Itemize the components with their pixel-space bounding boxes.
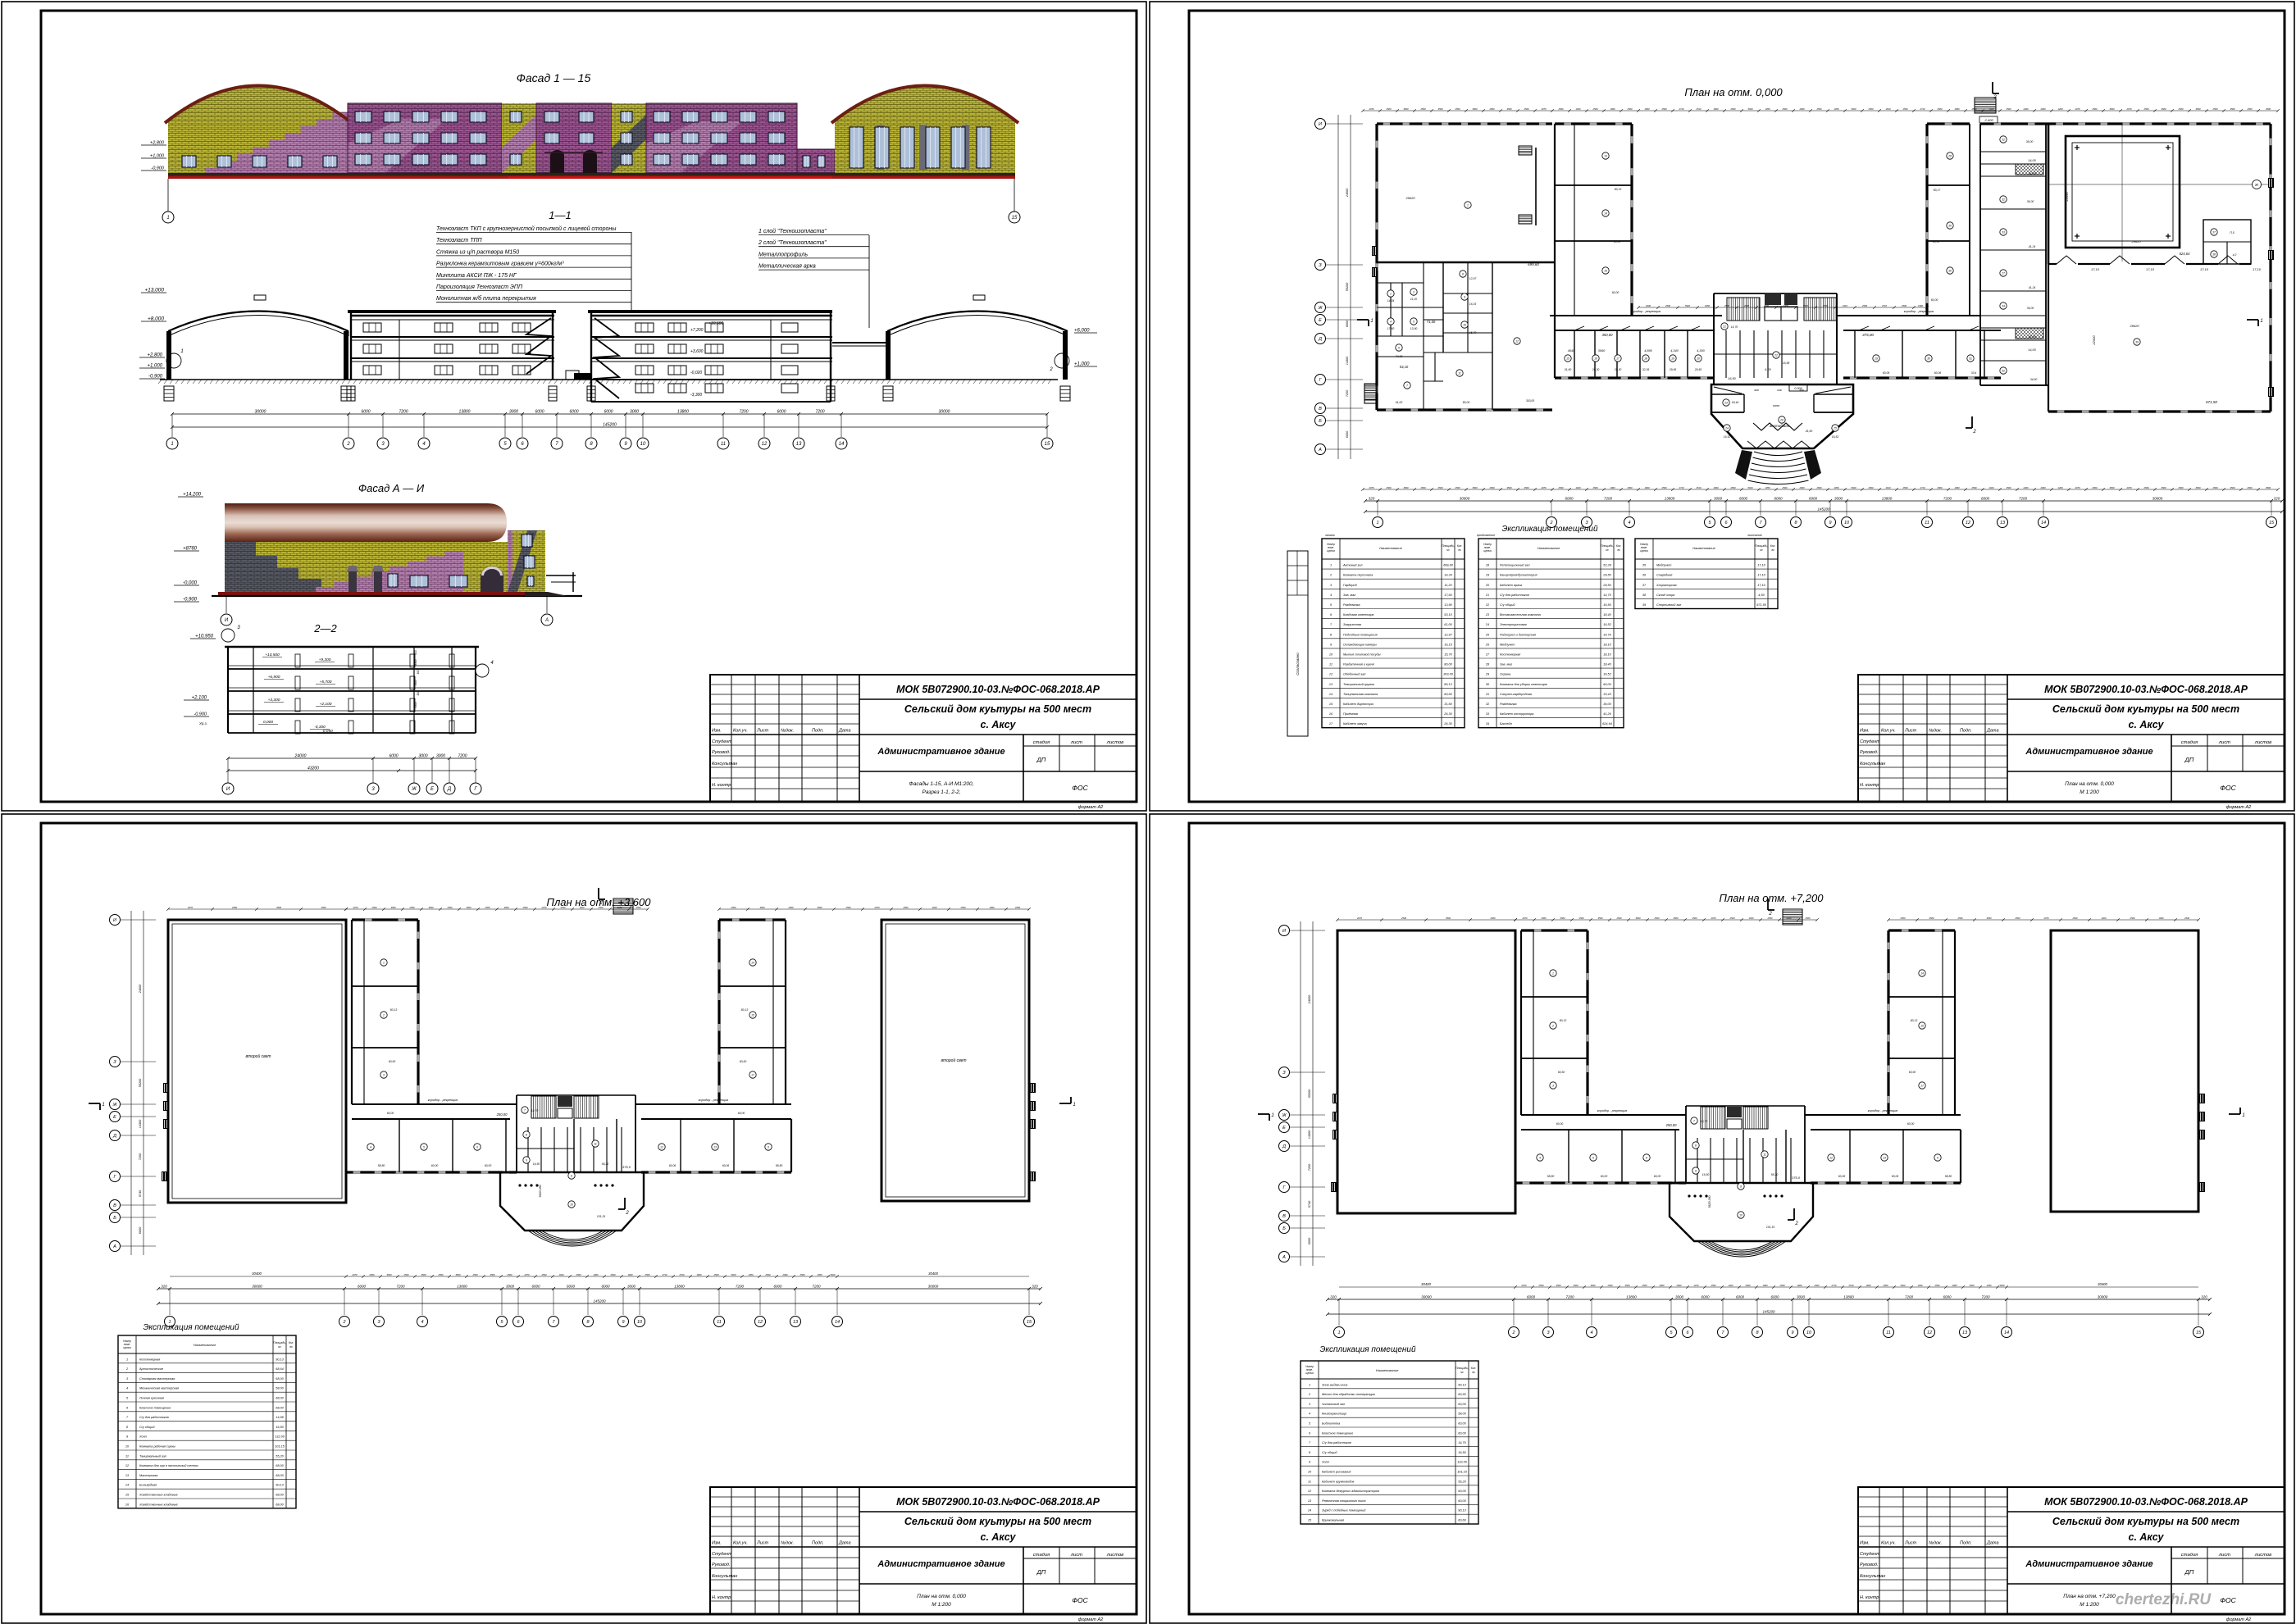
svg-text:320: 320: [2201, 1295, 2207, 1299]
svg-text:Кабинет врача: Кабинет врача: [1500, 584, 1522, 587]
svg-text:2500: 2500: [2247, 486, 2253, 489]
svg-text:320: 320: [161, 1285, 167, 1289]
svg-text:План на отм. 0,000: План на отм. 0,000: [2065, 781, 2114, 787]
svg-text:второй свет: второй свет: [245, 1053, 271, 1059]
svg-text:2000: 2000: [1743, 304, 1749, 307]
svg-text:1: 1: [1330, 564, 1332, 567]
svg-text:13,90: 13,90: [1444, 603, 1452, 607]
svg-text:4,340: 4,340: [1670, 349, 1679, 353]
svg-text:Площадь,: Площадь,: [1442, 544, 1455, 548]
svg-text:699,60: 699,60: [1443, 564, 1454, 567]
svg-text:С/у для работников: С/у для работников: [1500, 594, 1529, 597]
svg-text:9: 9: [126, 1435, 129, 1439]
svg-text:18,40: 18,40: [1603, 613, 1611, 616]
svg-text:101,15: 101,15: [597, 1215, 605, 1218]
svg-text:6000: 6000: [531, 1285, 540, 1289]
svg-text:14,70: 14,70: [531, 1109, 539, 1112]
svg-text:32,36: 32,36: [1642, 368, 1650, 371]
svg-text:3060: 3060: [1598, 349, 1606, 353]
svg-text:5920: 5920: [1901, 1284, 1906, 1287]
svg-text:16,52: 16,52: [1724, 435, 1731, 439]
svg-text:во: во: [289, 1345, 293, 1349]
svg-text:2500: 2500: [1558, 107, 1564, 111]
svg-text:60,06: 60,06: [722, 1164, 730, 1167]
svg-text:11: 11: [721, 442, 726, 447]
svg-text:1920: 1920: [559, 1273, 564, 1276]
svg-text:5: 5: [126, 1397, 129, 1400]
svg-text:второй свет: второй свет: [941, 1058, 966, 1063]
svg-text:формат А2: формат А2: [2226, 805, 2251, 810]
svg-text:А: А: [112, 1244, 116, 1249]
svg-text:+10,500: +10,500: [708, 321, 723, 326]
svg-text:6000: 6000: [604, 410, 613, 415]
svg-text:Снарядная: Снарядная: [1656, 574, 1672, 577]
svg-text:2500: 2500: [1861, 304, 1867, 307]
svg-text:Д: Д: [112, 1134, 116, 1139]
svg-text:2: 2: [1768, 912, 1772, 917]
svg-text:17: 17: [1616, 357, 1619, 361]
svg-text:2500: 2500: [2212, 107, 2218, 111]
svg-text:Лист: Лист: [756, 1541, 769, 1546]
svg-text:+6,900: +6,900: [268, 675, 280, 680]
svg-text:Административное здание: Административное здание: [2025, 1559, 2152, 1569]
svg-text:60,00: 60,00: [1603, 683, 1611, 686]
svg-text:7: 7: [1693, 1120, 1695, 1123]
svg-text:2510: 2510: [679, 1273, 685, 1276]
svg-text:671,50: 671,50: [2206, 400, 2217, 404]
svg-text:Лист: Лист: [756, 729, 769, 734]
svg-text:2500: 2500: [1578, 917, 1584, 920]
svg-text:350,00: 350,00: [1602, 333, 1613, 337]
svg-text:Консультан: Консультан: [712, 762, 737, 767]
svg-text:12: 12: [660, 1146, 663, 1149]
svg-text:ДП: ДП: [2184, 756, 2194, 763]
svg-text:1610: 1610: [1843, 304, 1847, 307]
svg-text:14: 14: [835, 1320, 840, 1325]
svg-text:7200: 7200: [1981, 1295, 1990, 1299]
svg-text:Подп.: Подп.: [1960, 1541, 1972, 1546]
svg-text:2500: 2500: [2072, 917, 2078, 920]
svg-text:68,00: 68,00: [276, 1474, 284, 1477]
svg-text:14: 14: [751, 962, 754, 965]
svg-text:14,00: 14,00: [2028, 335, 2036, 339]
svg-text:60,60: 60,60: [1558, 1071, 1565, 1074]
svg-text:101,15: 101,15: [1766, 1226, 1774, 1229]
svg-text:16,50: 16,50: [1458, 1451, 1466, 1454]
svg-text:3000: 3000: [1675, 1295, 1684, 1299]
svg-text:2500: 2500: [1730, 107, 1736, 111]
svg-text:2500: 2500: [1627, 486, 1633, 489]
svg-text:60,60: 60,60: [740, 1060, 747, 1063]
svg-text:60,06: 60,06: [1838, 1175, 1846, 1178]
svg-text:2500: 2500: [1969, 1284, 1975, 1287]
svg-text:6: 6: [476, 1146, 478, 1149]
svg-text:24000: 24000: [139, 984, 142, 994]
svg-text:7200: 7200: [458, 754, 467, 759]
svg-text:16,50: 16,50: [1702, 1173, 1710, 1176]
svg-text:МОК 5В072900.10-03.№ФОС-068.20: МОК 5В072900.10-03.№ФОС-068.2018.АР: [896, 1496, 1100, 1508]
svg-text:3500: 3500: [1660, 1284, 1665, 1287]
svg-text:3500: 3500: [490, 1273, 495, 1276]
svg-text:Д: Д: [1282, 1144, 1286, 1149]
svg-text:14: 14: [1920, 972, 1924, 976]
svg-text:Классное помещение: Классное помещение: [139, 1406, 171, 1409]
svg-text:2500: 2500: [409, 906, 415, 909]
svg-text:Сельский дом куьтуры на 500 ме: Сельский дом куьтуры на 500 мест: [2052, 703, 2239, 715]
svg-text:16: 16: [1329, 712, 1333, 716]
svg-text:624,64: 624,64: [1602, 722, 1612, 726]
svg-text:Санузел-гардеробная: Санузел-гардеробная: [1500, 693, 1532, 696]
svg-text:щения: щения: [1327, 549, 1335, 553]
svg-text:375,0: 375,0: [622, 1165, 631, 1169]
svg-text:Кружковальная: Кружковальная: [1322, 1519, 1344, 1522]
svg-text:30000: 30000: [1421, 1295, 1432, 1299]
svg-text:Радиоузел и дикторская: Радиоузел и дикторская: [1500, 633, 1536, 636]
svg-text:60,06: 60,06: [1892, 1175, 1899, 1178]
svg-text:10: 10: [1308, 1471, 1312, 1474]
svg-text:А: А: [1282, 1255, 1286, 1260]
svg-text:2070: 2070: [1369, 107, 1374, 111]
svg-text:стадия: стадия: [2181, 1553, 2198, 1558]
svg-text:7200: 7200: [1943, 497, 1952, 501]
svg-text:3500: 3500: [2266, 486, 2271, 489]
svg-text:24: 24: [1485, 623, 1489, 626]
svg-text:2500: 2500: [2130, 917, 2135, 920]
svg-text:6: 6: [126, 1406, 129, 1409]
svg-text:Е: Е: [1319, 318, 1322, 323]
svg-text:коридор - рекреация: коридор - рекреация: [1904, 310, 1934, 313]
svg-text:17,10: 17,10: [1757, 574, 1765, 577]
svg-text:Ж: Ж: [1317, 306, 1323, 311]
svg-text:3500: 3500: [429, 906, 434, 909]
svg-text:1920: 1920: [1729, 1284, 1733, 1287]
svg-text:25: 25: [1485, 633, 1490, 636]
svg-text:80,13: 80,13: [1444, 683, 1452, 686]
svg-text:60,60: 60,60: [1909, 1071, 1916, 1074]
svg-text:60,00: 60,00: [1612, 291, 1619, 294]
svg-text:30: 30: [1486, 683, 1490, 686]
svg-text:15: 15: [1566, 357, 1569, 361]
svg-text:145200: 145200: [1817, 507, 1830, 512]
svg-text:18: 18: [1486, 564, 1490, 567]
svg-text:11: 11: [1458, 372, 1461, 375]
svg-text:2500: 2500: [799, 1273, 805, 1276]
svg-text:145200: 145200: [603, 423, 617, 428]
svg-text:41,24: 41,24: [2029, 245, 2036, 248]
svg-text:8: 8: [1330, 633, 1332, 636]
svg-text:Раздевалка: Раздевалка: [1343, 603, 1360, 607]
svg-text:71,00: 71,00: [1427, 320, 1436, 324]
svg-text:74,00: 74,00: [1396, 355, 1403, 358]
svg-text:2500: 2500: [2143, 486, 2149, 489]
svg-text:Изм.: Изм.: [712, 1541, 722, 1546]
svg-text:3300: 3300: [414, 659, 417, 665]
svg-text:1960: 1960: [1955, 486, 1960, 489]
svg-text:Репетиционный зал: Репетиционный зал: [1500, 564, 1530, 567]
svg-text:7200: 7200: [399, 410, 408, 415]
svg-text:Е: Е: [113, 1115, 116, 1120]
svg-text:Раздаточная и кухня: Раздаточная и кухня: [1343, 663, 1374, 666]
svg-text:2500: 2500: [1805, 917, 1811, 920]
svg-text:14300: 14300: [1346, 356, 1349, 365]
svg-text:7200: 7200: [1308, 1163, 1311, 1171]
svg-text:Комната рабочая сцены: Комната рабочая сцены: [139, 1445, 175, 1449]
svg-text:2500: 2500: [2212, 486, 2218, 489]
svg-text:3: 3: [126, 1377, 129, 1381]
svg-text:15: 15: [2269, 521, 2275, 525]
svg-text:14,34: 14,34: [1387, 299, 1395, 303]
svg-text:60,00: 60,00: [1458, 1499, 1466, 1503]
svg-text:7200: 7200: [736, 1285, 745, 1289]
svg-text:36,00: 36,00: [2026, 140, 2034, 143]
svg-text:2500: 2500: [1816, 107, 1822, 111]
svg-text:6000: 6000: [361, 410, 370, 415]
svg-text:1600: 1600: [1714, 486, 1719, 489]
svg-text:1: 1: [1309, 1383, 1310, 1386]
svg-text:2500: 2500: [731, 906, 736, 909]
svg-text:Консультан: Консультан: [712, 1574, 737, 1579]
svg-text:План на отм. 0,000: План на отм. 0,000: [1684, 86, 1783, 98]
svg-text:3500: 3500: [760, 906, 765, 909]
svg-text:Ж: Ж: [411, 787, 417, 792]
svg-text:Экспликация помещений: Экспликация помещений: [143, 1323, 239, 1332]
svg-text:И: И: [1319, 122, 1322, 127]
svg-text:2500: 2500: [1676, 1284, 1682, 1287]
svg-text:2500: 2500: [2178, 107, 2184, 111]
svg-text:2070: 2070: [1693, 1284, 1699, 1287]
svg-text:Дата: Дата: [838, 1541, 851, 1546]
svg-text:Сельский дом куьтуры на 500 ме: Сельский дом куьтуры на 500 мест: [904, 1516, 1091, 1527]
svg-text:16: 16: [125, 1503, 130, 1506]
svg-text:Подп.: Подп.: [812, 1541, 824, 1546]
svg-text:55,20: 55,20: [602, 1162, 609, 1166]
svg-text:1600: 1600: [1714, 107, 1719, 111]
svg-text:1: 1: [2260, 319, 2262, 324]
svg-text:3500: 3500: [387, 1273, 392, 1276]
svg-text:11,20: 11,20: [1410, 298, 1417, 301]
svg-text:8: 8: [1695, 1144, 1697, 1148]
svg-text:80,13: 80,13: [1615, 188, 1622, 191]
svg-text:1: 1: [1376, 521, 1378, 525]
svg-text:Комната для уборки инвентаря: Комната для уборки инвентаря: [1500, 683, 1547, 686]
svg-text:10: 10: [1463, 324, 1466, 327]
svg-text:14,00: 14,00: [2028, 159, 2036, 162]
svg-text:2500: 2500: [522, 906, 528, 909]
svg-text:7200: 7200: [1905, 1295, 1914, 1299]
svg-text:320: 320: [1369, 497, 1375, 501]
svg-text:11: 11: [717, 1320, 722, 1325]
svg-text:Мытья столовой посуды: Мытья столовой посуды: [1343, 653, 1381, 657]
svg-text:1: 1: [383, 962, 385, 965]
svg-text:6000: 6000: [1308, 1237, 1311, 1244]
svg-text:3500: 3500: [2110, 107, 2115, 111]
svg-text:60,00: 60,00: [1458, 1490, 1466, 1493]
svg-text:30400: 30400: [928, 1271, 938, 1276]
svg-text:1920: 1920: [932, 906, 937, 909]
svg-text:6000: 6000: [358, 1285, 367, 1289]
svg-text:3000: 3000: [1797, 1295, 1806, 1299]
svg-text:2500: 2500: [903, 906, 909, 909]
svg-text:Н. контр.: Н. контр.: [712, 783, 732, 788]
svg-text:6000: 6000: [1527, 1295, 1536, 1299]
svg-text:2500: 2500: [1730, 486, 1736, 489]
svg-text:5920: 5920: [1748, 107, 1753, 111]
svg-text:лист: лист: [2218, 740, 2230, 745]
svg-text:2500: 2500: [765, 1273, 771, 1276]
svg-text:2710: 2710: [662, 1273, 667, 1276]
svg-text:Костюмерная: Костюмерная: [139, 1358, 160, 1361]
svg-text:26,30: 26,30: [1592, 368, 1600, 371]
svg-text:4: 4: [490, 661, 494, 666]
svg-text:5620 280: 5620 280: [539, 1185, 542, 1198]
svg-text:6000: 6000: [1346, 430, 1349, 438]
svg-text:2070: 2070: [541, 906, 547, 909]
svg-text:Согласовано: Согласовано: [1296, 653, 1300, 676]
svg-text:1: 1: [102, 1103, 104, 1108]
svg-text:щения: щения: [1305, 1372, 1314, 1375]
svg-text:15: 15: [1045, 442, 1050, 447]
svg-text:3: 3: [237, 625, 240, 630]
svg-text:И: И: [226, 787, 230, 792]
svg-text:12: 12: [758, 1320, 763, 1325]
svg-text:10: 10: [125, 1445, 130, 1449]
svg-text:21: 21: [1722, 325, 1726, 329]
svg-text:2500: 2500: [1957, 917, 1963, 920]
svg-text:80,13: 80,13: [741, 1008, 749, 1012]
svg-text:26,30: 26,30: [1443, 712, 1452, 716]
svg-text:15: 15: [125, 1494, 130, 1497]
svg-text:101,15: 101,15: [275, 1445, 285, 1449]
svg-text:2400: 2400: [2023, 486, 2029, 489]
svg-text:38: 38: [1642, 594, 1647, 597]
svg-text:58,80: 58,80: [378, 1164, 385, 1167]
svg-text:2500: 2500: [231, 906, 237, 909]
svg-text:8: 8: [1462, 273, 1464, 276]
svg-text:2500: 2500: [598, 906, 604, 909]
svg-text:4: 4: [1309, 1412, 1310, 1416]
svg-text:Металлопрофиль: Металлопрофиль: [758, 252, 808, 257]
svg-text:60,00: 60,00: [1931, 298, 1938, 302]
svg-text:8: 8: [1309, 1451, 1311, 1454]
svg-text:С/у для работников: С/у для работников: [1322, 1441, 1351, 1444]
svg-text:80,17: 80,17: [1934, 189, 1941, 192]
svg-text:10: 10: [1844, 521, 1850, 525]
svg-text:3500: 3500: [1625, 1284, 1630, 1287]
svg-text:2: 2: [1551, 1025, 1554, 1028]
svg-text:м²: м²: [1760, 548, 1763, 552]
svg-text:3500: 3500: [1507, 486, 1512, 489]
svg-text:2510: 2510: [1696, 486, 1701, 489]
svg-text:Механическая мастерская: Механическая мастерская: [139, 1387, 179, 1390]
svg-text:4,890: 4,890: [1644, 349, 1652, 353]
svg-text:41,24: 41,24: [2029, 286, 2036, 289]
svg-text:6000: 6000: [1770, 1295, 1779, 1299]
svg-text:2: 2: [1308, 1393, 1311, 1396]
svg-text:План на отм. 0,000: План на отм. 0,000: [917, 1594, 966, 1599]
svg-text:С/у общий: С/у общий: [139, 1426, 155, 1429]
svg-text:ДП: ДП: [1036, 756, 1046, 763]
svg-text:31,60: 31,60: [1444, 703, 1452, 706]
svg-text:21: 21: [1485, 594, 1489, 597]
svg-text:2: 2: [346, 442, 350, 447]
svg-text:13,90: 13,90: [1410, 327, 1418, 330]
svg-text:9: 9: [622, 1320, 624, 1325]
svg-text:Спортивный зал: Спортивный зал: [1656, 603, 1682, 607]
svg-text:13: 13: [1962, 1331, 1968, 1335]
svg-text:3500: 3500: [391, 906, 396, 909]
svg-text:Изм.: Изм.: [1860, 729, 1870, 734]
svg-text:6000: 6000: [1774, 497, 1783, 501]
svg-text:30000: 30000: [2098, 1295, 2108, 1299]
svg-text:1: 1: [180, 349, 183, 354]
svg-text:13800: 13800: [674, 1285, 685, 1289]
svg-text:Консультан: Консультан: [1860, 1574, 1885, 1579]
svg-text:Студент: Студент: [1860, 739, 1880, 744]
svg-text:Охрана: Охрана: [1500, 673, 1510, 676]
svg-text:8: 8: [526, 1134, 527, 1137]
svg-text:34,60: 34,60: [2030, 378, 2038, 381]
svg-text:Зав. маг: Зав. маг: [1343, 594, 1355, 597]
svg-text:2500: 2500: [1779, 1284, 1785, 1287]
svg-text:2710: 2710: [1831, 1284, 1837, 1287]
svg-text:Хозяйственные кладовые: Хозяйственные кладовые: [139, 1494, 178, 1497]
svg-text:14: 14: [839, 442, 845, 447]
svg-text:1960: 1960: [1610, 107, 1615, 111]
svg-text:коридор - рекреация: коридор - рекреация: [1868, 1109, 1897, 1112]
svg-text:А: А: [544, 618, 549, 623]
svg-text:2070: 2070: [1369, 486, 1374, 489]
svg-text:7: 7: [1330, 623, 1332, 626]
svg-text:Наименование: Наименование: [194, 1343, 216, 1347]
svg-text:Техноэласт ТПП: Техноэласт ТПП: [436, 238, 483, 243]
svg-text:И: И: [113, 918, 116, 923]
svg-text:стадия: стадия: [1033, 1553, 1050, 1558]
svg-text:5620 280: 5620 280: [1708, 1196, 1711, 1208]
svg-text:13800: 13800: [1665, 497, 1675, 501]
svg-text:2500: 2500: [2015, 917, 2020, 920]
svg-text:15: 15: [1920, 1025, 1924, 1028]
svg-text:2400: 2400: [2023, 107, 2029, 111]
svg-text:3500: 3500: [1404, 107, 1409, 111]
svg-text:300: 300: [417, 691, 420, 696]
svg-text:30: 30: [1948, 270, 1952, 273]
svg-text:5920: 5920: [1852, 486, 1856, 489]
svg-text:Руковод.: Руковод.: [1860, 750, 1878, 755]
svg-text:4,300: 4,300: [1697, 349, 1705, 353]
svg-text:5920: 5920: [2000, 1284, 2005, 1287]
svg-text:60,60: 60,60: [389, 1060, 396, 1063]
svg-text:м²: м²: [278, 1345, 281, 1349]
svg-text:14: 14: [2004, 1331, 2009, 1335]
svg-text:2070: 2070: [2126, 107, 2132, 111]
svg-text:15,70: 15,70: [1469, 331, 1477, 334]
svg-text:22050: 22050: [2065, 192, 2069, 202]
svg-text:12: 12: [762, 442, 768, 447]
svg-text:1950: 1950: [818, 1273, 822, 1276]
svg-text:5: 5: [1413, 321, 1414, 324]
svg-text:с. Аксу: с. Аксу: [2129, 719, 2165, 730]
svg-text:щения: щения: [1640, 549, 1648, 553]
svg-text:17,60: 17,60: [1387, 327, 1395, 330]
svg-text:С/у общий: С/у общий: [1500, 603, 1515, 607]
svg-text:1: 1: [1390, 293, 1392, 296]
svg-text:Стяжка из ц/п раствора М150: Стяжка из ц/п раствора М150: [436, 249, 519, 255]
svg-text:7200: 7200: [396, 1285, 405, 1289]
svg-text:52,39: 52,39: [1603, 564, 1611, 567]
svg-text:3500: 3500: [1987, 917, 1992, 920]
svg-text:Книгохранилище: Книгохранилище: [1322, 1412, 1346, 1416]
svg-text:Подп.: Подп.: [812, 729, 824, 734]
